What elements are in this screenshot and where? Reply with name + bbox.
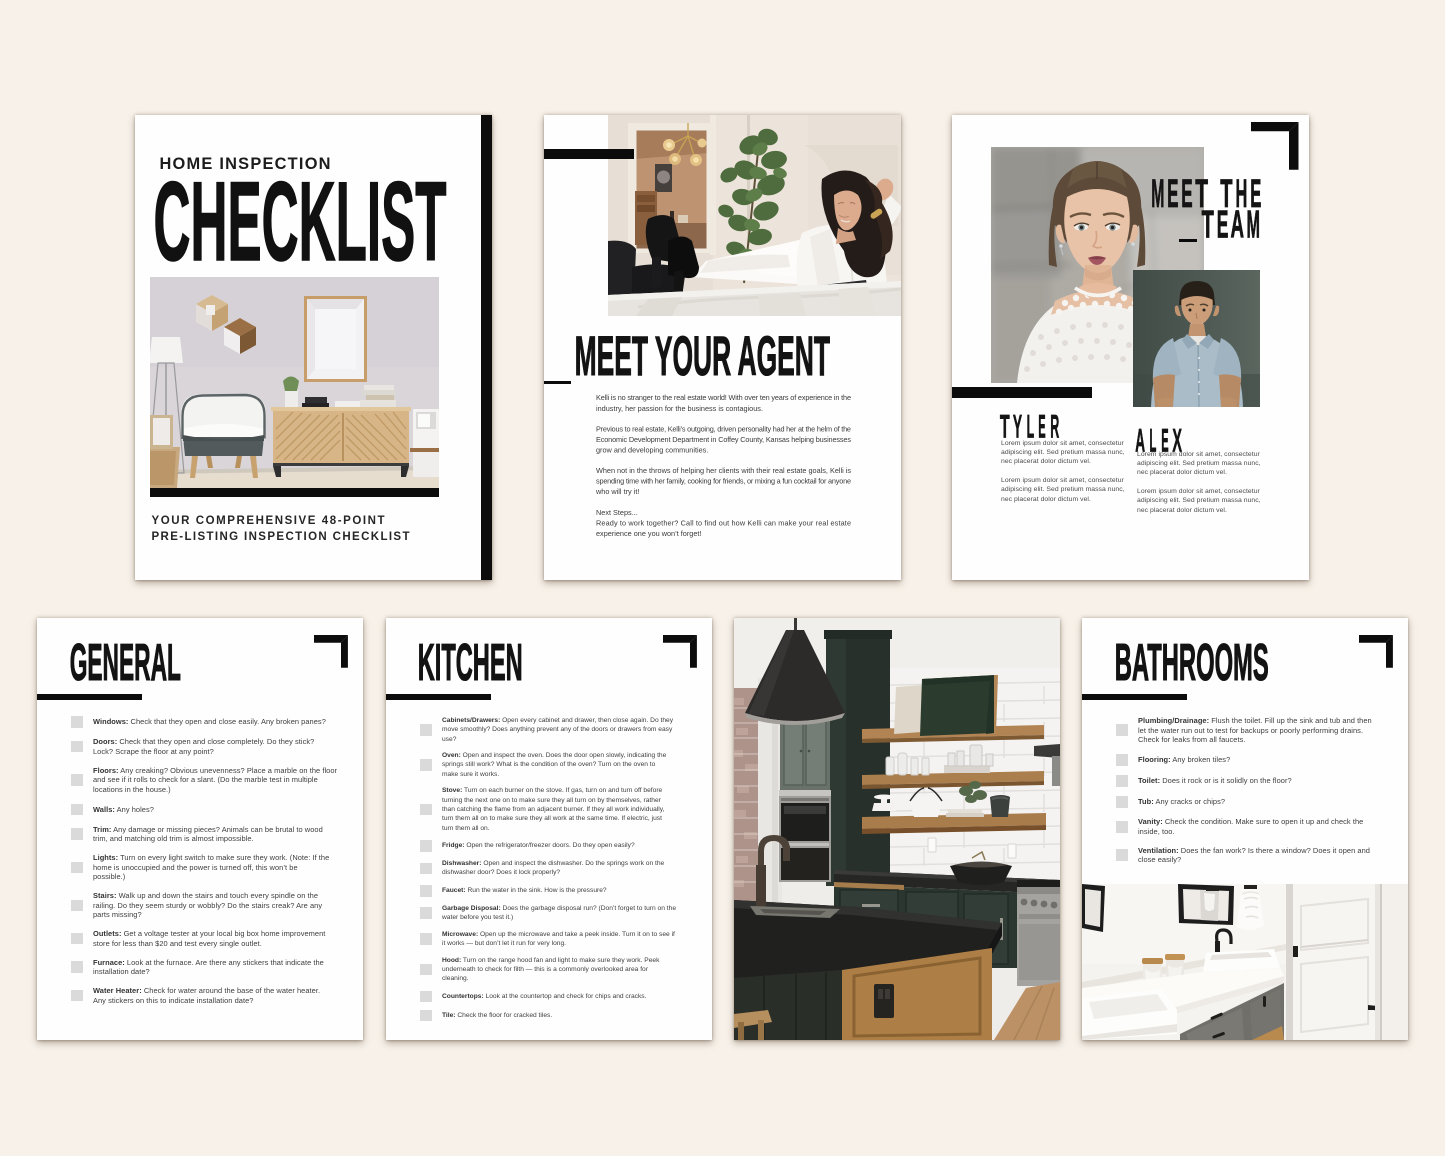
svg-text:who will try it!: who will try it! <box>595 487 639 496</box>
svg-text:KITCHEN: KITCHEN <box>418 633 523 691</box>
svg-text:industry, her passion for the: industry, her passion for the business i… <box>596 404 763 413</box>
svg-text:When not in the throws of help: When not in the throws of helping her cl… <box>596 466 851 475</box>
svg-text:E: E <box>1167 172 1178 216</box>
svg-text:E: E <box>1217 204 1229 247</box>
svg-text:E: E <box>1181 172 1192 216</box>
svg-text:A: A <box>1231 204 1245 247</box>
svg-text:Next Steps...: Next Steps... <box>596 508 638 517</box>
svg-text:BATHROOMS: BATHROOMS <box>1115 633 1269 691</box>
svg-text:spending time with her family,: spending time with her family, cooking f… <box>596 477 851 486</box>
svg-text:Previous to real estate, Kelli: Previous to real estate, Kelli’s outgoin… <box>596 424 851 433</box>
svg-text:experience one you won’t forge: experience one you won’t forget! <box>596 529 701 538</box>
svg-text:Economic Development Departmen: Economic Development Department in Coffe… <box>596 435 851 444</box>
svg-text:M: M <box>1151 172 1164 216</box>
svg-text:CHECKLIST: CHECKLIST <box>154 159 447 284</box>
svg-text:Kelli is no stranger to the re: Kelli is no stranger to the real estate … <box>596 393 851 402</box>
svg-text:YOUR COMPREHENSIVE 48-POINT: YOUR COMPREHENSIVE 48-POINT <box>152 515 385 527</box>
svg-text:Ready to work together? Call t: Ready to work together? Call to find out… <box>596 518 851 527</box>
svg-text:grow and developing communitie: grow and developing communities. <box>596 446 708 455</box>
svg-text:T: T <box>1202 204 1214 247</box>
svg-text:PRE-LISTING INSPECTION CHECKLI: PRE-LISTING INSPECTION CHECKLIST <box>152 531 410 543</box>
svg-text:M: M <box>1247 204 1261 247</box>
svg-text:MEET YOUR AGENT: MEET YOUR AGENT <box>575 324 830 387</box>
svg-text:GENERAL: GENERAL <box>70 633 181 691</box>
